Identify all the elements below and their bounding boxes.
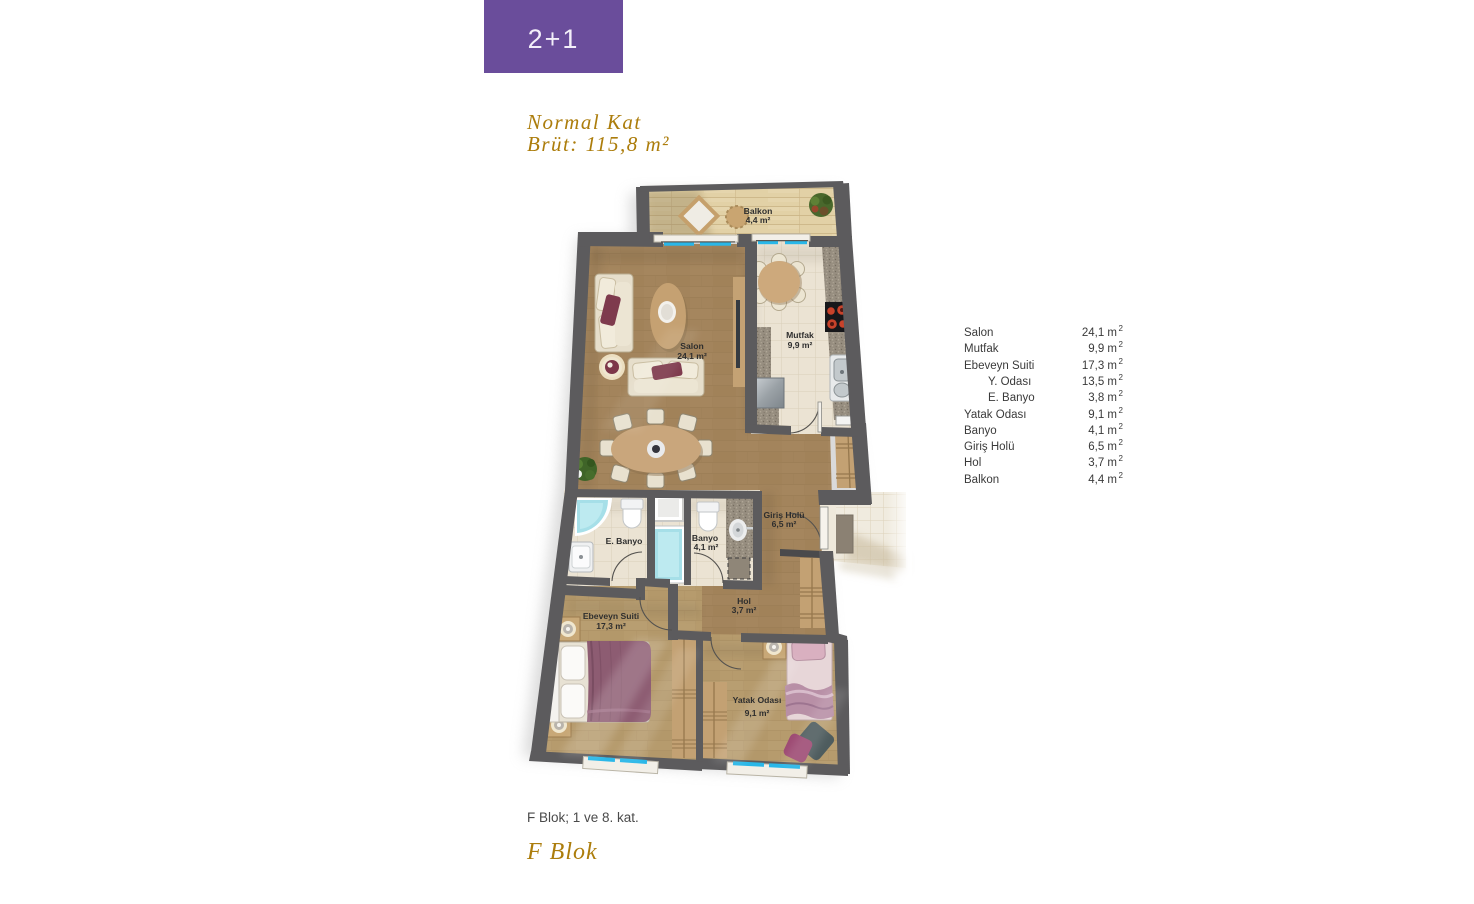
svg-text:3,7 m²: 3,7 m²	[732, 605, 757, 615]
svg-text:4,1 m²: 4,1 m²	[694, 542, 719, 552]
svg-text:Mutfak: Mutfak	[786, 330, 814, 340]
svg-text:9,1 m²: 9,1 m²	[745, 708, 770, 718]
svg-text:Salon: Salon	[680, 341, 703, 351]
svg-text:24,1 m²: 24,1 m²	[677, 351, 707, 361]
svg-text:4,4 m²: 4,4 m²	[746, 215, 771, 225]
svg-text:6,5 m²: 6,5 m²	[772, 519, 797, 529]
svg-text:Yatak Odası: Yatak Odası	[733, 695, 782, 705]
svg-text:E. Banyo: E. Banyo	[606, 536, 643, 546]
svg-text:Ebeveyn Suiti: Ebeveyn Suiti	[583, 611, 639, 621]
svg-text:17,3 m²: 17,3 m²	[596, 621, 626, 631]
svg-text:9,9 m²: 9,9 m²	[788, 340, 813, 350]
